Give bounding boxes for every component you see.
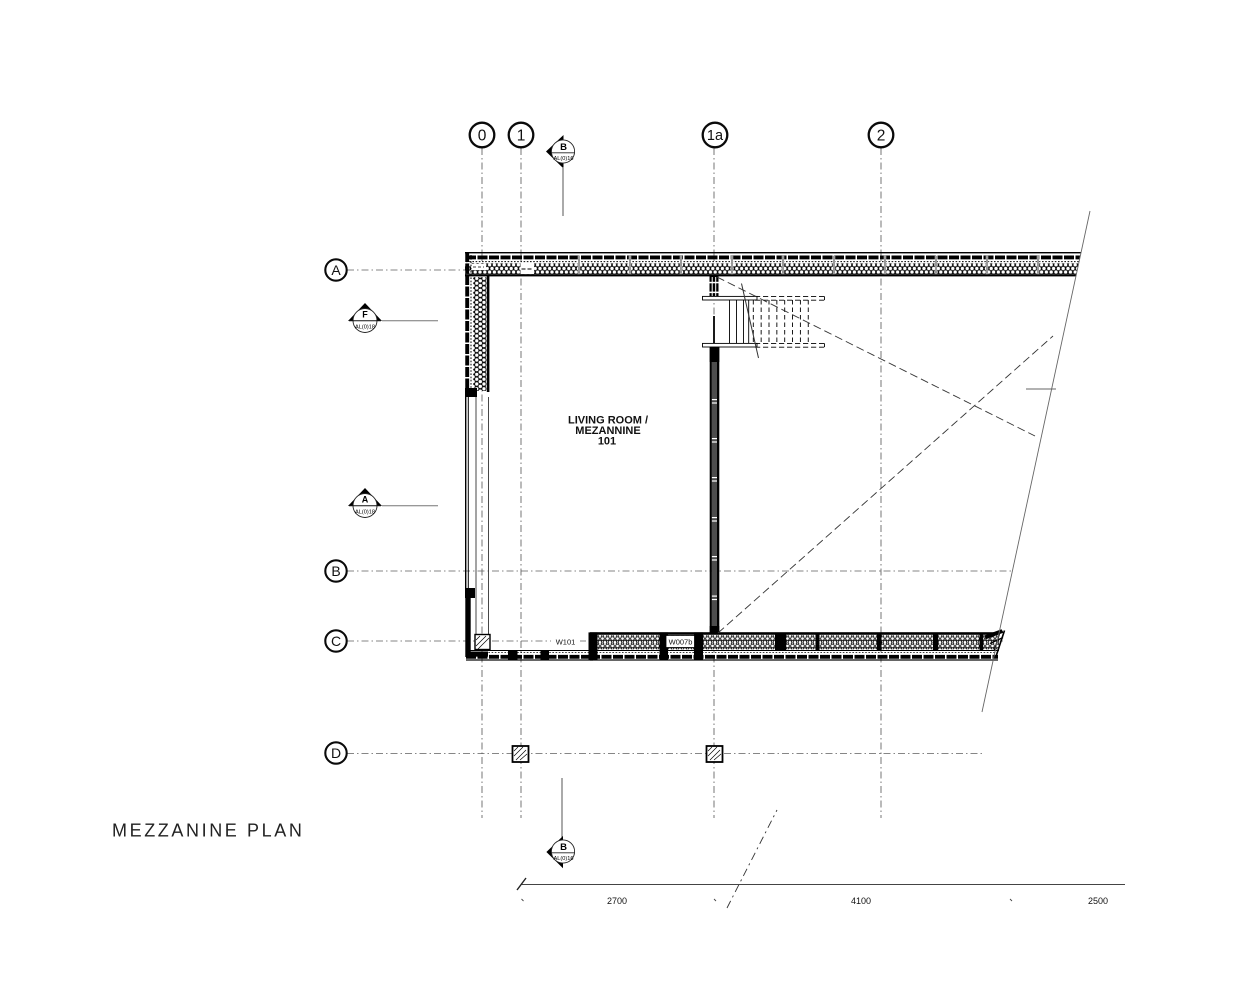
svg-text:1: 1 [517,128,526,145]
svg-text:4100: 4100 [851,896,871,906]
svg-text:A: A [362,495,369,505]
svg-text:D: D [331,745,341,761]
svg-text:101: 101 [598,436,616,448]
svg-text:W007b: W007b [669,638,693,647]
svg-text:A: A [331,262,341,278]
svg-text:MEZZANINE PLAN: MEZZANINE PLAN [112,821,304,841]
svg-text:AL(0)18: AL(0)18 [355,510,375,516]
svg-text:C: C [331,633,341,649]
svg-text:B: B [331,563,340,579]
svg-text:F: F [362,310,368,320]
svg-text:B: B [560,142,567,153]
svg-text:AL(0)18: AL(0)18 [355,325,375,331]
svg-text:0: 0 [478,128,487,145]
svg-text:2500: 2500 [1088,896,1108,906]
svg-text:W101: W101 [556,638,576,647]
svg-text:AL(0)16: AL(0)16 [554,856,574,862]
svg-text:AL(0)16: AL(0)16 [554,156,574,162]
svg-text:B: B [560,842,567,853]
svg-text:1a: 1a [707,128,724,144]
svg-text:2: 2 [877,128,886,145]
svg-text:2700: 2700 [607,896,627,906]
